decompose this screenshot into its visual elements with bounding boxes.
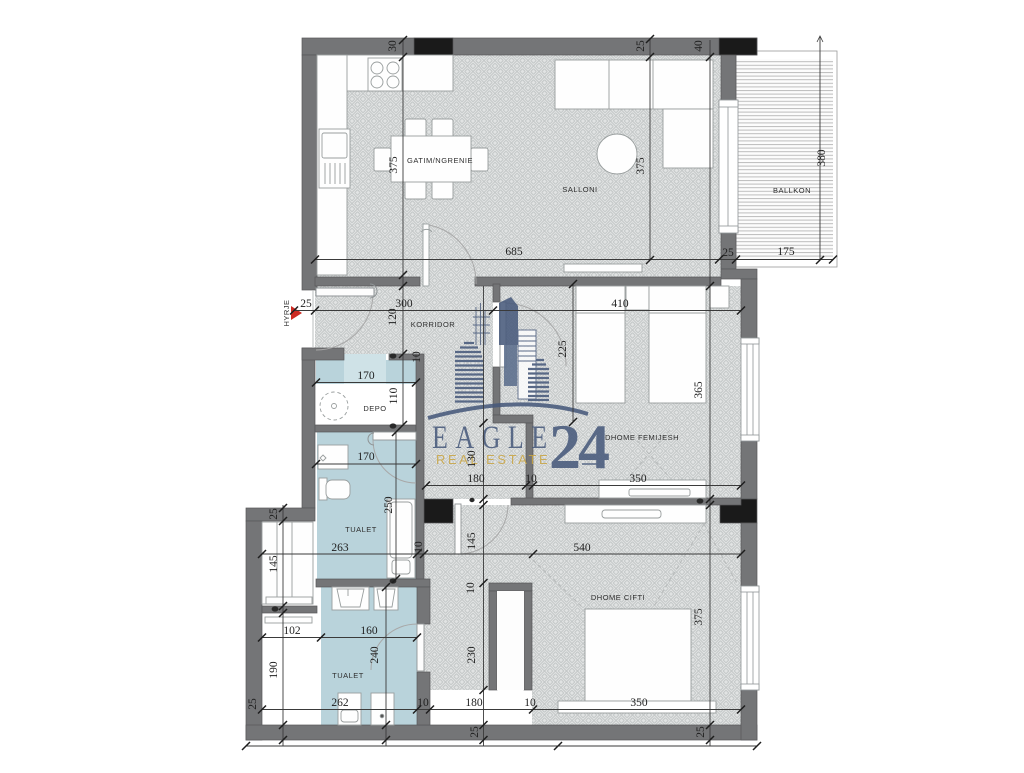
svg-text:170: 170 <box>357 451 375 463</box>
svg-text:120: 120 <box>387 308 399 326</box>
svg-text:25: 25 <box>722 247 734 259</box>
svg-text:10: 10 <box>524 697 536 709</box>
svg-text:TUALET: TUALET <box>345 525 377 534</box>
svg-text:685: 685 <box>505 246 523 258</box>
svg-text:375: 375 <box>388 156 400 174</box>
svg-text:24: 24 <box>549 411 609 482</box>
svg-text:350: 350 <box>630 697 648 709</box>
svg-text:240: 240 <box>369 646 381 664</box>
svg-text:HYRJE: HYRJE <box>282 299 291 326</box>
svg-text:25: 25 <box>469 726 481 738</box>
svg-text:GATIM/NGRENIE: GATIM/NGRENIE <box>407 156 473 165</box>
svg-text:REAL ESTATE: REAL ESTATE <box>436 452 550 467</box>
svg-text:145: 145 <box>466 532 478 550</box>
svg-text:375: 375 <box>693 608 705 626</box>
svg-text:250: 250 <box>383 496 395 514</box>
svg-text:TUALET: TUALET <box>332 671 364 680</box>
svg-text:180: 180 <box>465 697 483 709</box>
svg-text:25: 25 <box>695 726 707 738</box>
svg-text:190: 190 <box>268 661 280 679</box>
svg-text:30: 30 <box>387 40 399 52</box>
svg-text:10: 10 <box>411 351 423 363</box>
svg-text:350: 350 <box>629 473 647 485</box>
svg-text:25: 25 <box>268 508 280 520</box>
svg-text:540: 540 <box>573 542 591 554</box>
svg-text:DEPO: DEPO <box>363 404 386 413</box>
svg-text:25: 25 <box>635 40 647 52</box>
svg-text:KORRIDOR: KORRIDOR <box>411 320 456 329</box>
svg-text:10: 10 <box>413 541 425 553</box>
svg-text:180: 180 <box>467 473 485 485</box>
svg-text:25: 25 <box>300 298 312 310</box>
svg-text:10: 10 <box>465 582 477 594</box>
svg-text:170: 170 <box>357 370 375 382</box>
svg-text:263: 263 <box>331 542 349 554</box>
svg-text:102: 102 <box>283 625 301 637</box>
svg-text:145: 145 <box>268 555 280 573</box>
svg-text:10: 10 <box>525 473 537 485</box>
svg-text:EAGLE: EAGLE <box>432 419 555 456</box>
svg-text:110: 110 <box>388 387 400 404</box>
svg-text:380: 380 <box>816 149 828 167</box>
svg-text:DHOME FEMIJESH: DHOME FEMIJESH <box>605 433 679 442</box>
svg-text:130: 130 <box>466 450 478 468</box>
svg-text:10: 10 <box>417 697 429 709</box>
svg-text:25: 25 <box>247 698 259 710</box>
svg-text:365: 365 <box>693 381 705 399</box>
svg-text:262: 262 <box>331 697 349 709</box>
svg-text:SALLONI: SALLONI <box>562 185 597 194</box>
svg-text:410: 410 <box>611 298 629 310</box>
svg-text:300: 300 <box>395 298 413 310</box>
svg-text:BALLKON: BALLKON <box>773 186 811 195</box>
svg-text:175: 175 <box>777 246 795 258</box>
svg-text:40: 40 <box>693 40 705 52</box>
svg-text:160: 160 <box>360 625 378 637</box>
svg-text:375: 375 <box>635 157 647 175</box>
svg-text:230: 230 <box>466 646 478 664</box>
svg-text:DHOME CIFTI: DHOME CIFTI <box>591 593 645 602</box>
svg-text:225: 225 <box>557 340 569 358</box>
